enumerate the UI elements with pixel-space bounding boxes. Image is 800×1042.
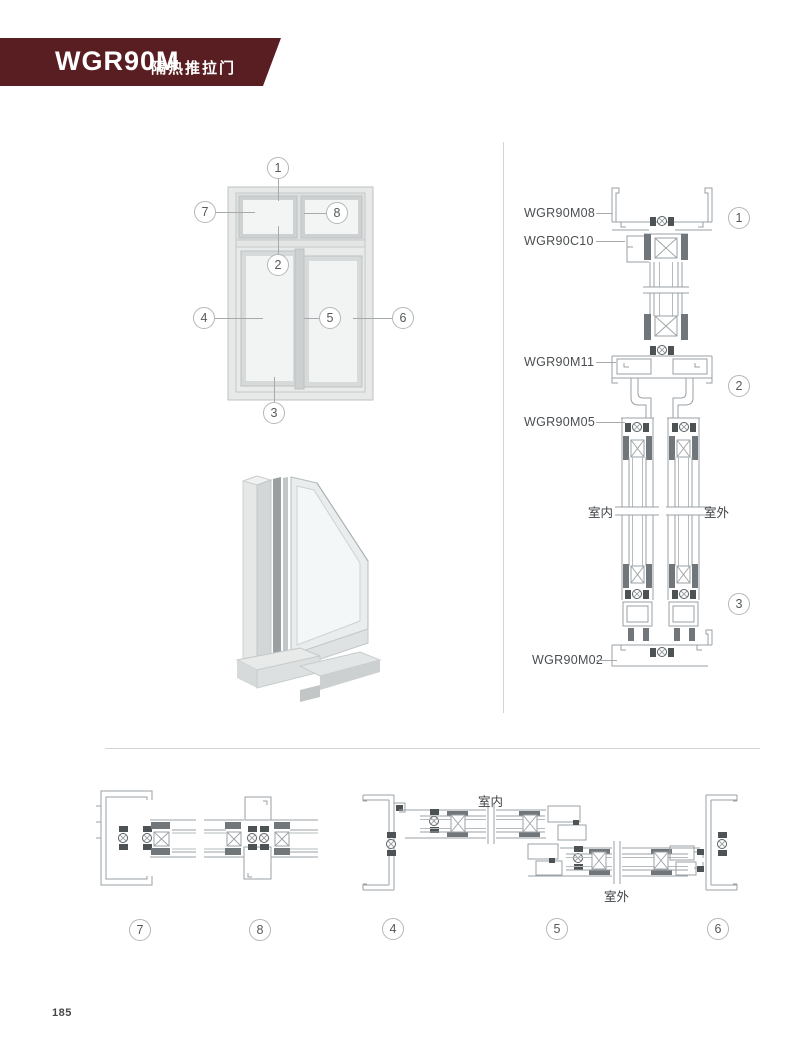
label-leader-m11 — [596, 362, 616, 363]
horizontal-divider — [105, 748, 760, 749]
elevation-callout-6: 6 — [392, 307, 414, 329]
leader-3 — [274, 377, 275, 402]
label-leader-m02 — [596, 660, 617, 661]
head-frame — [612, 188, 712, 230]
hs-indoor-label: 室内 — [478, 791, 503, 810]
detail-8 — [204, 797, 318, 879]
elevation-callout-3: 3 — [263, 402, 285, 424]
profile-label-wgr90m11: WGR90M11 — [524, 355, 594, 369]
header-banner: WGR90M 隔热推拉门 — [0, 38, 281, 86]
elevation-callout-1: 1 — [267, 157, 289, 179]
elevation-callout-8: 8 — [326, 202, 348, 224]
profile-label-wgr90m05: WGR90M05 — [524, 415, 595, 429]
profile-label-wgr90c10: WGR90C10 — [524, 234, 594, 248]
right-jamb — [706, 795, 737, 890]
product-subtitle: 隔热推拉门 — [151, 57, 236, 78]
left-jamb — [363, 795, 405, 890]
profile-label-wgr90m08: WGR90M08 — [524, 206, 595, 220]
elevation-callout-2: 2 — [267, 254, 289, 276]
upper-glass — [643, 262, 689, 340]
label-leader-m05 — [596, 422, 625, 423]
leader-4 — [215, 318, 263, 319]
catalog-page: WGR90M 隔热推拉门 1 7 8 2 4 5 6 3 — [0, 0, 800, 1042]
sash-column-right — [667, 418, 700, 641]
elevation-drawing — [190, 153, 420, 425]
label-leader-m08 — [596, 213, 612, 214]
elevation-callout-7: 7 — [194, 201, 216, 223]
vs-callout-3: 3 — [728, 593, 750, 615]
vs-callout-2: 2 — [728, 375, 750, 397]
sash-column-left — [621, 418, 654, 641]
hs-callout-6: 6 — [707, 918, 729, 940]
leader-1 — [278, 179, 279, 201]
label-leader-c10 — [596, 241, 625, 242]
profile-label-wgr90m02: WGR90M02 — [532, 653, 603, 667]
bottom-track — [612, 630, 712, 666]
hs-callout-8: 8 — [249, 919, 271, 941]
leader-2 — [278, 226, 279, 254]
break-symbols — [614, 507, 711, 515]
vs-indoor-label: 室内 — [588, 502, 613, 521]
elevation-callout-5: 5 — [319, 307, 341, 329]
isometric-profile-image — [225, 455, 425, 725]
hs-callout-5: 5 — [546, 918, 568, 940]
page-number: 185 — [52, 1007, 72, 1019]
hs-callout-4: 4 — [382, 918, 404, 940]
elevation-frame — [228, 187, 373, 400]
detail-4-5-6-drawing — [360, 788, 770, 900]
sash-top — [644, 234, 688, 260]
vs-callout-1: 1 — [728, 207, 750, 229]
hs-callout-7: 7 — [129, 919, 151, 941]
elevation-callout-4: 4 — [193, 307, 215, 329]
lower-sash — [528, 840, 704, 884]
detail-7 — [96, 791, 196, 885]
leader-7 — [216, 212, 255, 213]
hs-outdoor-label: 室外 — [604, 886, 629, 905]
detail-7-8-drawing — [90, 782, 345, 900]
vs-outdoor-label: 室外 — [704, 502, 729, 521]
leader-5 — [304, 318, 319, 319]
transom-rail — [612, 346, 712, 419]
leader-6 — [353, 318, 392, 319]
leader-8 — [304, 213, 326, 214]
isometric-shapes — [237, 476, 380, 702]
vertical-divider — [503, 142, 504, 713]
